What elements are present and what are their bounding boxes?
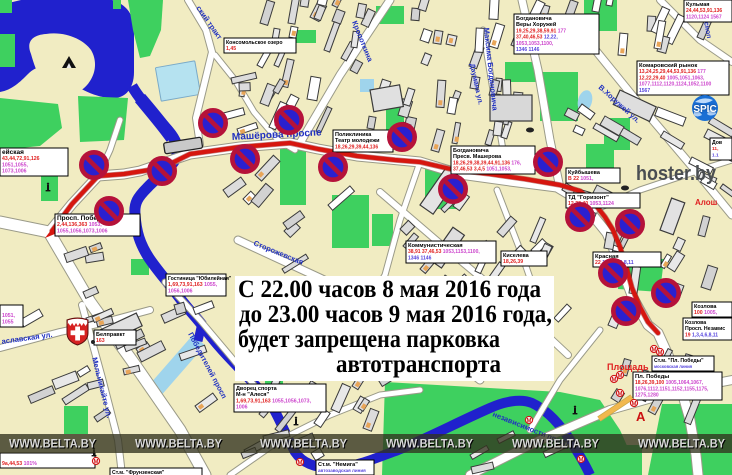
svg-text:1056,1006: 1056,1006 <box>168 288 193 294</box>
svg-text:А: А <box>636 409 646 424</box>
svg-text:М: М <box>298 460 303 466</box>
svg-text:WWW.BELTA.BY: WWW.BELTA.BY <box>512 439 599 451</box>
svg-text:Дворец спорта: Дворец спорта <box>236 386 278 392</box>
svg-text:1346 1146: 1346 1146 <box>408 255 432 261</box>
svg-text:Дов: Дов <box>712 140 722 146</box>
svg-text:38,91 37,46,53 1053,1153,1100,: 38,91 37,46,53 1053,1153,1100, <box>408 249 480 255</box>
svg-text:18,26,39,100 1005,1064,1067,: 18,26,39,100 1005,1064,1067, <box>635 380 704 386</box>
svg-text:Ст.м. "Фрунзенская": Ст.м. "Фрунзенская" <box>112 470 165 475</box>
svg-text:100 1005,: 100 1005, <box>694 310 718 316</box>
svg-text:Коммунистическая: Коммунистическая <box>408 243 463 249</box>
svg-text:1076,1112,1151,1152,1155,1175,: 1076,1112,1151,1152,1155,1175, <box>635 386 709 392</box>
svg-text:WWW.BELTA.BY: WWW.BELTA.BY <box>638 439 725 451</box>
svg-text:43,44,72,91,126: 43,44,72,91,126 <box>2 156 40 162</box>
svg-text:Ст.м. "Пл. Победы": Ст.м. "Пл. Победы" <box>654 357 704 364</box>
svg-text:1073,1006: 1073,1006 <box>2 169 27 175</box>
svg-text:Консомольское озеро: Консомольское озеро <box>226 40 283 46</box>
svg-text:1053,1053,1100,: 1053,1053,1100, <box>516 41 554 47</box>
svg-text:1,69,73,91,163 1055,1056,1073,: 1,69,73,91,163 1055,1056,1073, <box>236 398 312 404</box>
svg-text:1567: 1567 <box>639 88 650 94</box>
svg-text:WWW.BELTA.BY: WWW.BELTA.BY <box>135 439 222 451</box>
svg-text:Белправкт: Белправкт <box>96 332 125 338</box>
svg-text:9а,44,53 101%: 9а,44,53 101% <box>2 461 37 467</box>
svg-text:18,26,29,38,39,44,91,136 176,: 18,26,29,38,39,44,91,136 176, <box>453 160 522 166</box>
svg-text:1275,1280: 1275,1280 <box>635 393 659 399</box>
svg-text:13,24,25,29,44,53,91,136 177: 13,24,25,29,44,53,91,136 177 <box>639 69 706 75</box>
svg-text:М: М <box>612 377 617 383</box>
svg-text:Кульмая: Кульмая <box>686 2 709 8</box>
svg-text:М: М <box>618 391 623 397</box>
svg-text:18,26,29,39,44,136: 18,26,29,39,44,136 <box>335 144 378 150</box>
svg-text:hoster.by: hoster.by <box>636 162 717 185</box>
svg-text:Киселева: Киселева <box>503 253 530 259</box>
svg-text:19,25,29,38,59,91 177: 19,25,29,38,59,91 177 <box>516 28 566 34</box>
svg-text:1055,1056,1073,1006: 1055,1056,1073,1006 <box>57 228 108 234</box>
svg-text:12,22,29,40 1005,1051,1063,: 12,22,29,40 1005,1051,1063, <box>639 75 705 81</box>
svg-text:автозаводская линия: автозаводская линия <box>318 468 366 473</box>
svg-text:Богдановича: Богдановича <box>516 16 553 22</box>
svg-text:2,44,136,363 1053,: 2,44,136,363 1053, <box>57 222 102 228</box>
svg-text:Веры Хоружей: Веры Хоружей <box>516 21 556 28</box>
svg-text:М: М <box>618 373 623 379</box>
svg-text:163: 163 <box>96 338 105 344</box>
svg-text:1006: 1006 <box>236 405 248 411</box>
svg-text:18,26,39: 18,26,39 <box>503 259 523 265</box>
svg-text:Богдановича: Богдановича <box>453 148 490 154</box>
svg-text:WWW.BELTA.BY: WWW.BELTA.BY <box>386 439 473 451</box>
svg-text:будет запрещена парковка: будет запрещена парковка <box>238 326 500 353</box>
svg-text:Просп. Независ: Просп. Независ <box>685 326 725 332</box>
svg-text:1.1: 1.1 <box>712 152 719 158</box>
svg-text:М: М <box>658 350 663 356</box>
svg-text:37,40,46,53 12,22,: 37,40,46,53 12,22, <box>516 35 558 41</box>
svg-text:11,: 11, <box>712 146 719 152</box>
svg-text:1051,1055,: 1051,1055, <box>2 162 29 168</box>
svg-text:Театр молодежи: Театр молодежи <box>335 138 379 144</box>
svg-text:В 22 1051,: В 22 1051, <box>568 176 594 182</box>
svg-text:1055: 1055 <box>2 319 14 325</box>
svg-text:WWW.BELTA.BY: WWW.BELTA.BY <box>9 439 96 451</box>
svg-text:Поликлиника: Поликлиника <box>335 132 372 138</box>
svg-text:24,44,53,91,136: 24,44,53,91,136 <box>686 8 722 14</box>
svg-text:Козлова: Козлова <box>694 304 717 310</box>
svg-text:ТД "Горизонт": ТД "Горизонт" <box>568 195 609 201</box>
svg-text:Пресв. Машерова: Пресв. Машерова <box>453 154 502 160</box>
svg-text:М: М <box>632 401 637 407</box>
svg-text:С 22.00 часов 8 мая 2016 года: С 22.00 часов 8 мая 2016 года <box>238 276 541 303</box>
svg-text:37,46,53 3,4,5 1051,1053,: 37,46,53 3,4,5 1051,1053, <box>453 167 512 173</box>
svg-text:Козлова: Козлова <box>685 320 706 326</box>
svg-text:Комаровский рынок: Комаровский рынок <box>639 62 697 69</box>
svg-text:1051,: 1051, <box>2 313 16 319</box>
svg-text:М: М <box>94 459 99 465</box>
svg-text:М: М <box>652 347 657 353</box>
svg-text:1120,1124 1567: 1120,1124 1567 <box>686 14 722 20</box>
svg-text:Алош: Алош <box>695 198 718 207</box>
svg-text:WWW.BELTA.BY: WWW.BELTA.BY <box>260 439 347 451</box>
svg-text:Площадь: Площадь <box>607 362 649 372</box>
svg-text:автотранспорта: автотранспорта <box>336 351 501 378</box>
svg-text:Гостиница "Юбилейная": Гостиница "Юбилейная" <box>168 275 232 282</box>
svg-text:Куйбышева: Куйбышева <box>568 169 601 176</box>
svg-text:ейская: ейская <box>2 148 24 156</box>
svg-text:1,45: 1,45 <box>226 46 236 52</box>
svg-text:Ст.м. "Немига": Ст.м. "Немига" <box>318 462 358 468</box>
svg-text:Просп. Побед: Просп. Побед <box>57 214 101 222</box>
svg-text:1346 1146: 1346 1146 <box>516 47 540 53</box>
svg-text:SPIC: SPIC <box>693 104 716 115</box>
svg-text:1,69,73,91,163 1055,: 1,69,73,91,163 1055, <box>168 282 218 288</box>
svg-text:М: М <box>579 457 584 463</box>
svg-text:московская линия: московская линия <box>654 364 693 369</box>
svg-text:М-н "Алеся": М-н "Алеся" <box>236 392 270 398</box>
svg-text:1077,1112,1120,1124,1052,1100: 1077,1112,1120,1124,1052,1100 <box>639 82 712 88</box>
svg-text:до 23.00 часов 9 мая 2016 год: до 23.00 часов 9 мая 2016 года, <box>239 301 552 328</box>
svg-text:Пл. Победы: Пл. Победы <box>635 373 669 380</box>
svg-text:М: М <box>527 418 532 424</box>
svg-text:19 1,3,4,6,8,11: 19 1,3,4,6,8,11 <box>685 332 718 338</box>
